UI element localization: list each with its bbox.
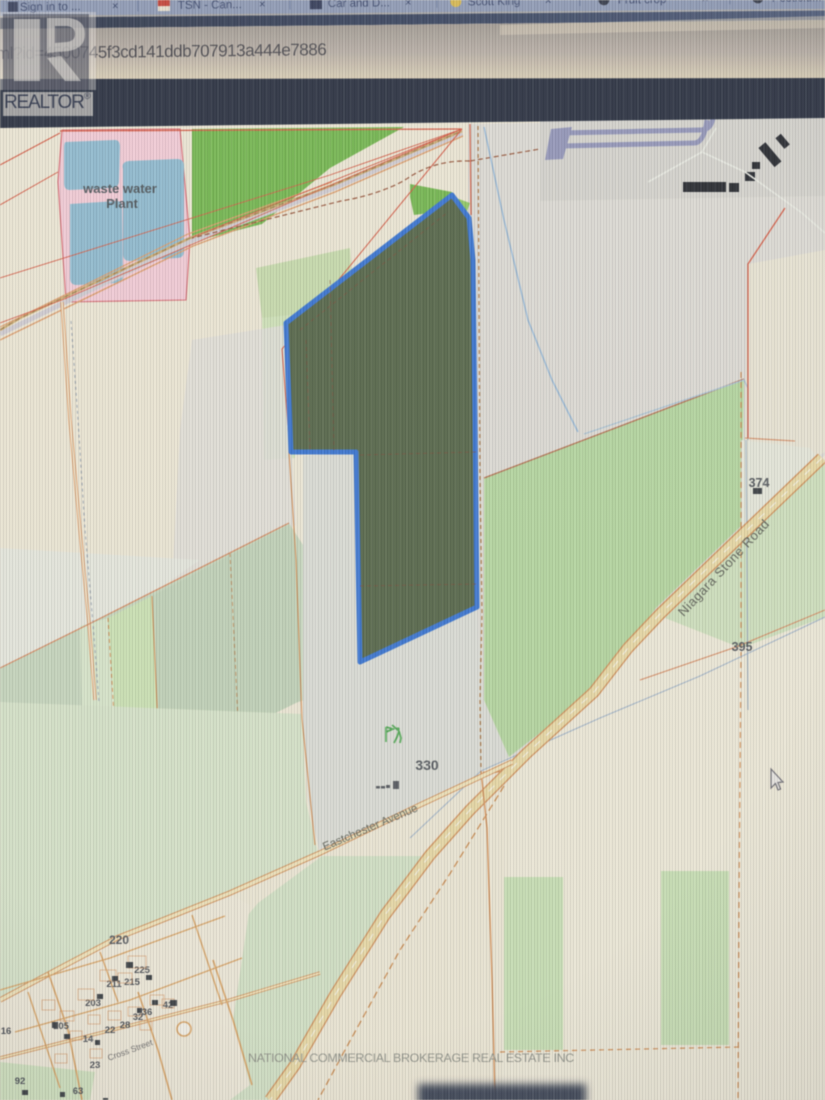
svg-text:Sign in to ...: Sign in to ... — [20, 1, 81, 14]
svg-text:REALTOR: REALTOR — [4, 92, 84, 113]
svg-text:225: 225 — [134, 965, 151, 976]
svg-text:×: × — [702, 0, 709, 6]
svg-text:23: 23 — [90, 1060, 101, 1071]
svg-text:Car and D...: Car and D... — [328, 0, 390, 10]
svg-text:14: 14 — [83, 1034, 94, 1045]
svg-text:Plant: Plant — [106, 196, 138, 211]
svg-text:®: ® — [84, 91, 91, 101]
svg-text:36: 36 — [142, 1007, 153, 1018]
svg-text:NATIONAL COMMERCIAL BROKERAGE: NATIONAL COMMERCIAL BROKERAGE REAL ESTAT… — [248, 1051, 574, 1065]
svg-text:63: 63 — [73, 1086, 84, 1097]
svg-text:16: 16 — [1, 1026, 12, 1037]
svg-text:395: 395 — [732, 640, 753, 654]
svg-text:TSN - Can...: TSN - Can... — [178, 0, 242, 12]
svg-text:×: × — [112, 1, 119, 13]
svg-text:×: × — [545, 0, 552, 7]
svg-text:22: 22 — [105, 1025, 116, 1036]
svg-text:374: 374 — [749, 476, 770, 490]
svg-text:220: 220 — [109, 933, 129, 947]
svg-text:28: 28 — [120, 1020, 131, 1031]
svg-text:×: × — [405, 0, 412, 9]
svg-text:330: 330 — [415, 757, 439, 773]
svg-text:Fruit crop: Fruit crop — [618, 0, 667, 7]
svg-text:Scott King: Scott King — [468, 0, 521, 8]
svg-text:waste water: waste water — [82, 181, 157, 196]
svg-text:92: 92 — [15, 1076, 26, 1087]
svg-text:×: × — [259, 0, 266, 11]
svg-text:Pesticid...: Pesticid... — [772, 0, 822, 5]
